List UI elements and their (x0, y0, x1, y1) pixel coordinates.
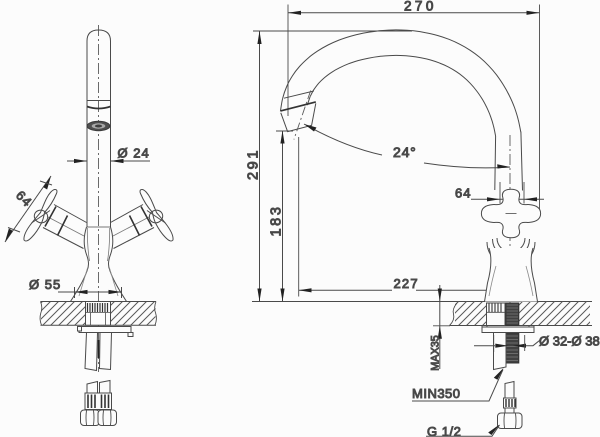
svg-text:183: 183 (269, 205, 285, 237)
svg-text:64: 64 (455, 186, 471, 201)
svg-text:Ø 24: Ø 24 (118, 146, 150, 161)
svg-text:MIN350: MIN350 (412, 386, 461, 401)
svg-text:G 1/2: G 1/2 (427, 424, 461, 437)
svg-text:270: 270 (404, 0, 437, 14)
svg-text:24°: 24° (393, 144, 417, 160)
svg-text:227: 227 (394, 276, 419, 291)
svg-text:MAX35: MAX35 (430, 335, 442, 370)
svg-text:Ø 55: Ø 55 (29, 277, 61, 292)
svg-text:64: 64 (13, 188, 35, 210)
svg-text:Ø 32-Ø 38: Ø 32-Ø 38 (539, 334, 600, 349)
svg-text:291: 291 (246, 148, 262, 180)
